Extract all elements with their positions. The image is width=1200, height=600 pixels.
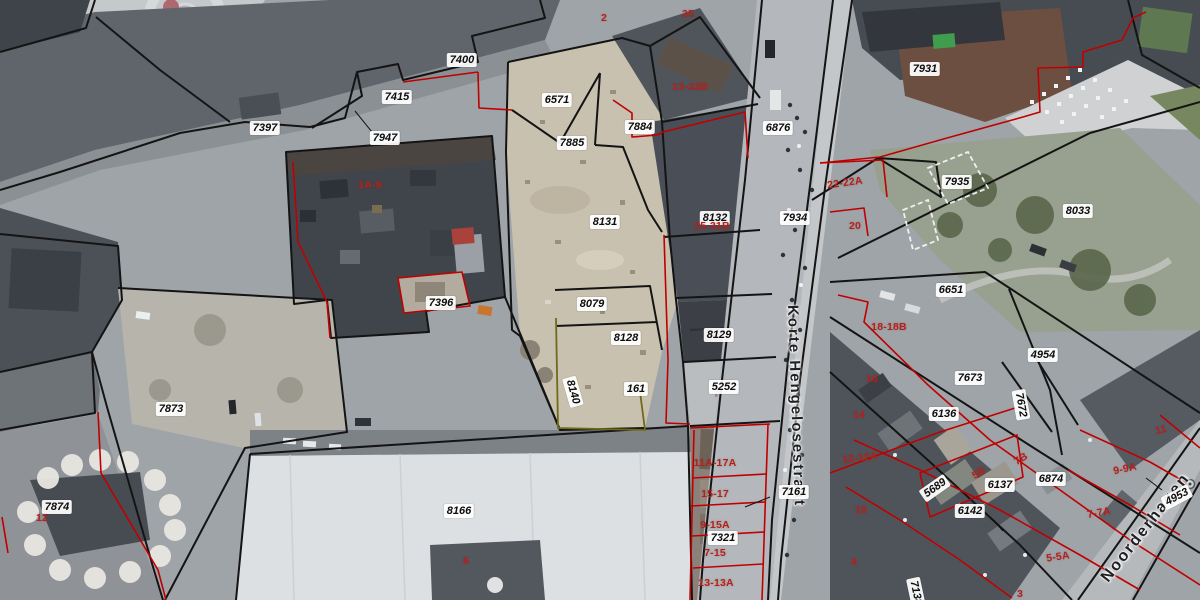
map-canvas[interactable]: Korte HengelosestraatNoorderhagen 740074… (0, 0, 1200, 600)
parcel-boundaries-layer (0, 0, 1200, 600)
dashed-selection-outline (903, 152, 988, 250)
label-leader-lines (355, 111, 1162, 531)
survey-marker-icon (1186, 480, 1195, 489)
parcel-boundaries (0, 0, 1200, 600)
olive-boundary (556, 318, 645, 430)
red-boundaries (2, 12, 1200, 600)
